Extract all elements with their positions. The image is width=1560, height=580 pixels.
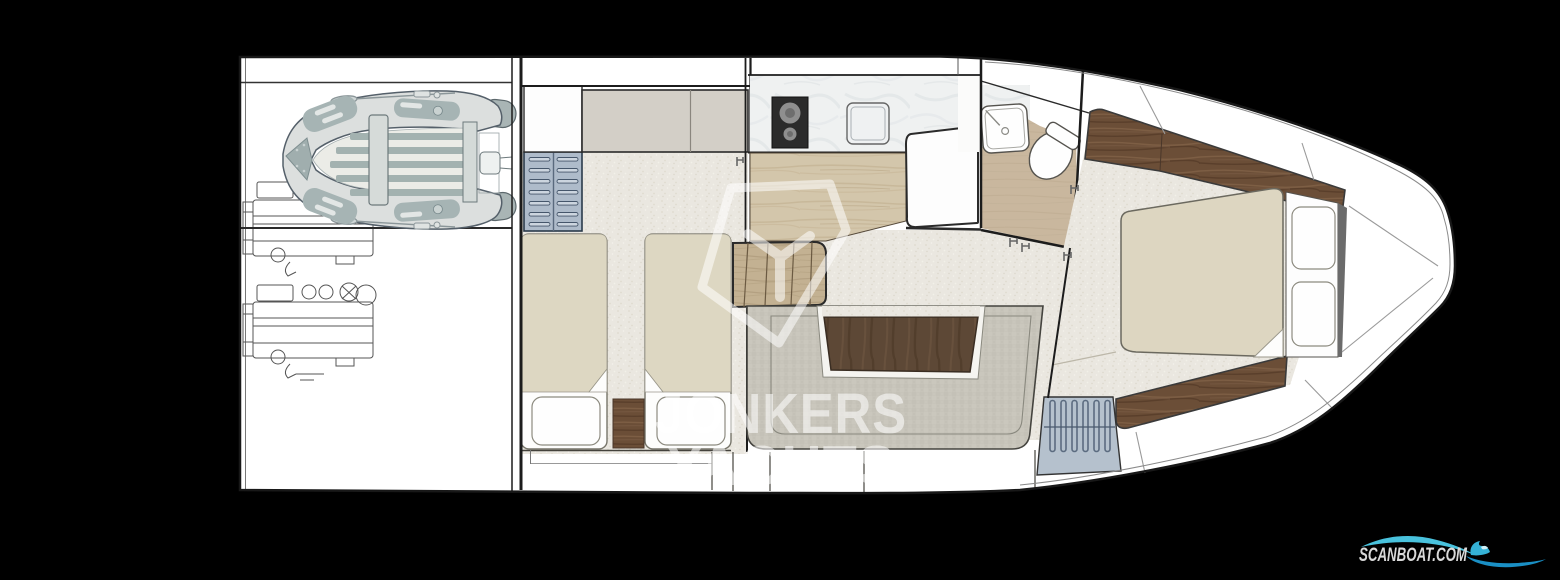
svg-text:SCANBOAT.COM: SCANBOAT.COM: [1359, 544, 1468, 566]
svg-text:YACHTS: YACHTS: [666, 434, 896, 498]
